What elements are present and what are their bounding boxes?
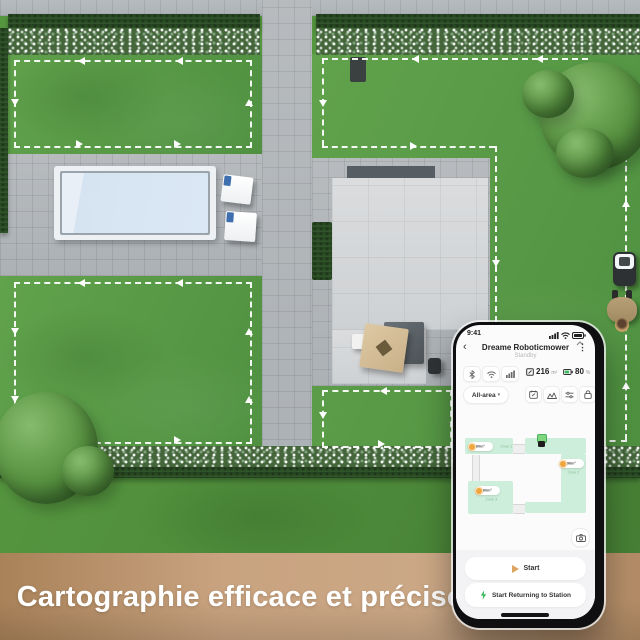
flash-icon — [480, 590, 487, 600]
parasol-canopy — [359, 323, 409, 373]
map-zone-2-top[interactable] — [525, 438, 586, 454]
route-arrow — [78, 279, 85, 287]
route-arrow — [245, 99, 253, 106]
sun-lounger — [224, 211, 257, 242]
route-arrow — [492, 260, 500, 267]
route-arrow — [11, 99, 19, 106]
play-icon — [512, 565, 519, 573]
route-arrow — [176, 57, 183, 65]
shrub-box — [312, 222, 332, 280]
lock-icon — [584, 390, 592, 399]
route-arrow — [378, 440, 385, 448]
sun-lounger — [220, 174, 253, 204]
scene: Cartographie efficace et précise 9:41 ‹ … — [0, 0, 640, 640]
signal-icon — [549, 332, 559, 339]
wifi-icon — [487, 371, 496, 378]
cellular-icon — [506, 370, 515, 378]
route-arrow — [412, 55, 419, 63]
parasol-vent — [376, 340, 393, 357]
area-selector-dropdown[interactable]: All-area ▾ — [463, 386, 509, 404]
route-line — [322, 146, 495, 148]
garden-mat — [350, 57, 366, 82]
area-value: 216 — [536, 367, 549, 376]
lock-button[interactable] — [579, 386, 595, 403]
zone-color-dot — [476, 488, 482, 494]
cellular-chip — [501, 366, 519, 382]
wifi-chip — [482, 366, 500, 382]
center-path — [262, 0, 312, 472]
flowerbed-top-right — [316, 28, 640, 55]
map-zone-outline-top-left — [14, 60, 252, 148]
route-arrow — [319, 412, 327, 419]
map-snapshot-button[interactable] — [571, 528, 590, 547]
route-arrow — [245, 328, 253, 335]
bluetooth-chip — [463, 366, 481, 382]
battery-value: 80 — [575, 367, 584, 376]
zone-area-label: 60m² — [483, 489, 492, 493]
tree — [556, 128, 614, 178]
page-title: Dreame Roboticmower — [456, 343, 595, 352]
map-corridor — [472, 455, 480, 483]
patio-slab — [332, 178, 488, 330]
phone-screen: 9:41 ‹ Dreame Roboticmower Standby ⋮ — [456, 325, 595, 619]
route-arrow — [380, 387, 387, 395]
person — [604, 290, 640, 338]
route-arrow — [78, 57, 85, 65]
more-icon[interactable]: ⋮ — [578, 342, 587, 353]
map-zone-outline-bottom-middle — [322, 390, 452, 448]
bluetooth-icon — [469, 370, 475, 379]
route-arrow — [245, 396, 253, 403]
zone-name-label: Zone 2 — [568, 471, 580, 475]
zone-area-badge: 96m² — [559, 459, 584, 468]
start-button-label: Start — [524, 565, 540, 572]
tree — [62, 446, 114, 496]
status-subtitle: Standby — [456, 353, 595, 359]
chevron-down-icon: ▾ — [498, 392, 501, 398]
status-icons — [549, 332, 586, 339]
zone-name-label: Zone 1 — [501, 445, 513, 449]
route-arrow — [11, 328, 19, 335]
map-corridor — [513, 444, 525, 454]
area-icon — [526, 368, 534, 376]
camera-icon — [576, 534, 586, 542]
sliders-button[interactable] — [561, 386, 578, 403]
zone-color-dot — [469, 444, 475, 450]
calendar-icon — [529, 390, 538, 399]
status-time: 9:41 — [467, 330, 481, 337]
flowerbed-bottom-left — [100, 446, 455, 468]
route-line — [322, 58, 588, 60]
map-zone-2-bottom[interactable] — [525, 502, 586, 513]
zone-color-dot — [560, 461, 566, 467]
route-arrow — [174, 436, 181, 444]
tree — [522, 70, 574, 118]
route-arrow — [536, 55, 543, 63]
zone-area-badge: 60m² — [468, 442, 493, 451]
battery-icon — [572, 332, 586, 339]
route-arrow — [622, 382, 630, 389]
route-arrow — [176, 279, 183, 287]
map-corridor — [513, 504, 525, 514]
route-arrow — [319, 100, 327, 107]
route-arrow — [410, 142, 417, 150]
area-stat: 216 m² — [526, 367, 557, 376]
dock-station-icon — [536, 434, 546, 448]
route-line — [495, 146, 497, 322]
pool-water — [62, 173, 208, 233]
area-selector-label: All-area — [472, 392, 496, 399]
zone-area-label: 60m² — [476, 445, 485, 449]
hedge-left-edge — [0, 28, 8, 233]
home-indicator[interactable] — [501, 613, 549, 617]
area-unit: m² — [551, 370, 557, 376]
flowerbed-top-left — [8, 28, 260, 55]
zone-name-label: Zone 3 — [486, 498, 498, 502]
battery-icon — [563, 369, 573, 375]
zone-area-badge: 60m² — [475, 486, 500, 495]
zones-icon — [547, 391, 557, 399]
battery-stat: 80 % — [563, 367, 590, 376]
return-to-station-button[interactable]: Start Returning to Station — [465, 583, 586, 607]
route-arrow — [174, 140, 181, 148]
start-button[interactable]: Start — [465, 557, 586, 580]
sliders-icon — [565, 391, 574, 399]
wifi-icon — [561, 332, 570, 339]
grill — [428, 358, 441, 374]
caption-text: Cartographie efficace et précise — [17, 581, 463, 614]
phone-mockup: 9:41 ‹ Dreame Roboticmower Standby ⋮ — [453, 322, 604, 628]
return-button-label: Start Returning to Station — [492, 592, 571, 599]
battery-unit: % — [586, 370, 590, 376]
route-arrow — [76, 140, 83, 148]
route-arrow — [622, 200, 630, 207]
zone-area-label: 96m² — [567, 462, 576, 466]
zones-button[interactable] — [543, 386, 560, 403]
robot-mower — [613, 252, 636, 286]
calendar-button[interactable] — [525, 386, 542, 403]
